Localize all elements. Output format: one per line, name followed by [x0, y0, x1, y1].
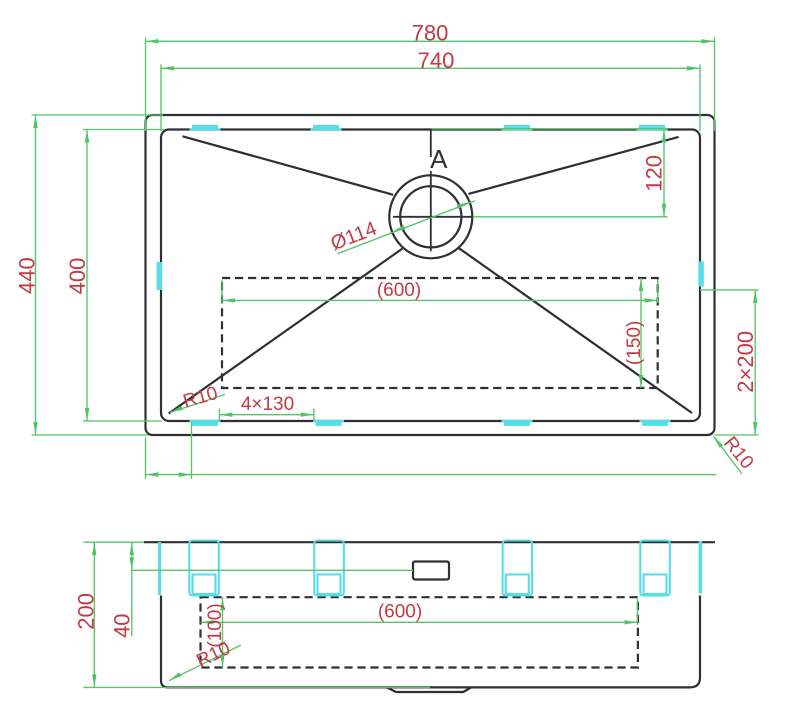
svg-text:780: 780	[412, 21, 449, 46]
svg-text:200: 200	[74, 593, 99, 630]
svg-text:(600): (600)	[377, 280, 421, 301]
svg-text:440: 440	[15, 257, 40, 294]
svg-text:(150): (150)	[624, 321, 645, 365]
svg-text:40: 40	[110, 613, 135, 637]
svg-text:400: 400	[65, 258, 90, 295]
svg-text:740: 740	[418, 48, 455, 73]
svg-text:A: A	[430, 144, 448, 174]
svg-text:(600): (600)	[378, 602, 422, 623]
svg-text:4×130: 4×130	[241, 394, 294, 415]
svg-text:120: 120	[642, 155, 667, 192]
svg-text:2×200: 2×200	[733, 331, 758, 393]
